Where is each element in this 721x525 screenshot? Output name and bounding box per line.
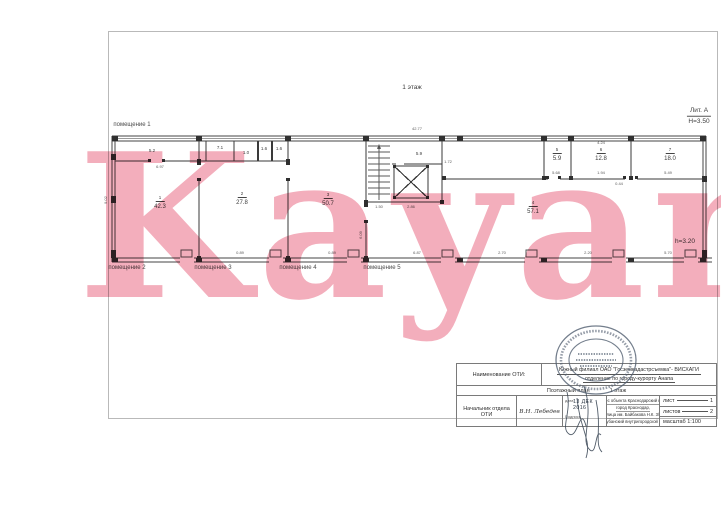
sheets-row: листов 2 xyxy=(660,407,716,418)
area-label: 42.3 xyxy=(154,204,166,210)
area-label: 27.8 xyxy=(236,200,248,206)
tiny-label: 1.6 xyxy=(276,147,282,152)
scale-label: масштаб 1:100 xyxy=(663,419,701,425)
address-line: Адрес объекта Краснодарский край, xyxy=(607,398,660,405)
dim-label: 6.09 xyxy=(359,231,363,239)
rnum-label: 2 xyxy=(238,192,247,198)
floorplan-drawing xyxy=(0,0,721,525)
area-label: 18.0 xyxy=(664,156,676,162)
address-line: улица им. Байбакова Н.К. 3/1 xyxy=(607,412,660,419)
dim-label: 1.94 xyxy=(597,171,605,175)
signature-label: Подпись xyxy=(565,414,581,419)
post-label: Начальник отдела ОТИ xyxy=(457,396,517,427)
name-label: помещение 1 xyxy=(113,122,150,128)
lit-label: Лит. А xyxy=(687,108,711,117)
area-label: 57.1 xyxy=(527,209,539,215)
dim-label: 9.02 xyxy=(104,196,108,204)
tiny-label: 1.0 xyxy=(243,151,249,156)
dim-label: 1.50 xyxy=(375,205,383,209)
signer-name: В.Н. Лебедев xyxy=(517,396,563,427)
oti-label: Наименование ОТИ: xyxy=(457,364,542,385)
tiny-label: 5.2 xyxy=(149,149,155,154)
scale-row: масштаб 1:100 xyxy=(660,417,716,427)
scanned-floorplan-page: 1 этажЛит. АH=3.50h=3.20помещение 1помещ… xyxy=(0,0,721,525)
dim-label: 2.20 xyxy=(584,251,592,255)
dim-label: 2.70 xyxy=(498,251,506,255)
plan-title-floor: 1 этаж xyxy=(610,388,626,394)
dim-label: 5.68 xyxy=(552,171,560,175)
date-stamp: 13 ДЕК 2016 xyxy=(573,399,606,411)
sheets-label: листов xyxy=(663,409,680,415)
note-label: H=3.50 xyxy=(688,119,709,126)
dim-label: 0.89 xyxy=(236,251,244,255)
area-label: 50.7 xyxy=(322,201,334,207)
rnum-label: 5 xyxy=(553,148,562,154)
title-block-bottom-row: Начальник отдела ОТИ В.Н. Лебедев дата 1… xyxy=(457,395,716,427)
date-signature-cell: дата 13 ДЕК 2016 Подпись xyxy=(563,396,607,427)
dim-label: 0.44 xyxy=(615,182,623,186)
sheet-info-cell: лист 1 листов 2 масштаб 1:100 xyxy=(660,396,716,427)
name-label: помещение 2 xyxy=(108,265,145,271)
name-label: помещение 3 xyxy=(194,265,231,271)
name-label: помещение 5 xyxy=(363,265,400,271)
object-address: Адрес объекта Краснодарский край, город … xyxy=(607,396,660,427)
area-label: 12.8 xyxy=(595,156,607,162)
dim-label: 4.24 xyxy=(597,141,605,145)
plan-title-label: Поэтажный план xyxy=(547,388,590,394)
dim-label: 0.89 xyxy=(328,251,336,255)
address-line: город Краснодар, xyxy=(616,405,650,412)
note-label: 1 этаж xyxy=(402,85,421,92)
sheet-value: 1 xyxy=(710,398,713,404)
dim-label: 6.97 xyxy=(156,165,164,169)
dim-label: 5.70 xyxy=(664,251,672,255)
title-block-row-oti: Наименование ОТИ: Южный филиал ОАО "Госз… xyxy=(457,364,716,385)
tiny-label: 5.9 xyxy=(416,152,422,157)
rnum-label: 7 xyxy=(666,148,675,154)
rnum-label: 4 xyxy=(529,201,538,207)
tiny-label: 1.6 xyxy=(261,147,267,152)
note-label: h=3.20 xyxy=(675,239,695,246)
title-block: Наименование ОТИ: Южный филиал ОАО "Госз… xyxy=(456,363,717,427)
dim-label: 6.87 xyxy=(413,251,421,255)
dim-label: 1.72 xyxy=(444,160,452,164)
tiny-label: 7.1 xyxy=(217,146,223,151)
rnum-label: 1 xyxy=(156,196,165,202)
sheets-value: 2 xyxy=(710,409,713,415)
sheet-row: лист 1 xyxy=(660,396,716,407)
area-label: 5.9 xyxy=(553,156,561,162)
rnum-label: 6 xyxy=(597,148,606,154)
rnum-label: 3 xyxy=(324,193,333,199)
organization-name: Южный филиал ОАО "Госземкадастрсъемка"- … xyxy=(542,364,716,385)
sheet-label: лист xyxy=(663,398,675,404)
dim-label: 5.49 xyxy=(664,171,672,175)
organization-line-1: Южный филиал ОАО "Госземкадастрсъемка"- … xyxy=(557,367,701,375)
dim-label: 2.86 xyxy=(407,205,415,209)
name-label: помещение 4 xyxy=(279,265,316,271)
organization-line-2: отделение по городу-курорту Анапа xyxy=(583,376,675,384)
dim-label: 42.77 xyxy=(412,127,422,131)
address-line: Прикубанский внутригородской округ xyxy=(607,419,660,425)
